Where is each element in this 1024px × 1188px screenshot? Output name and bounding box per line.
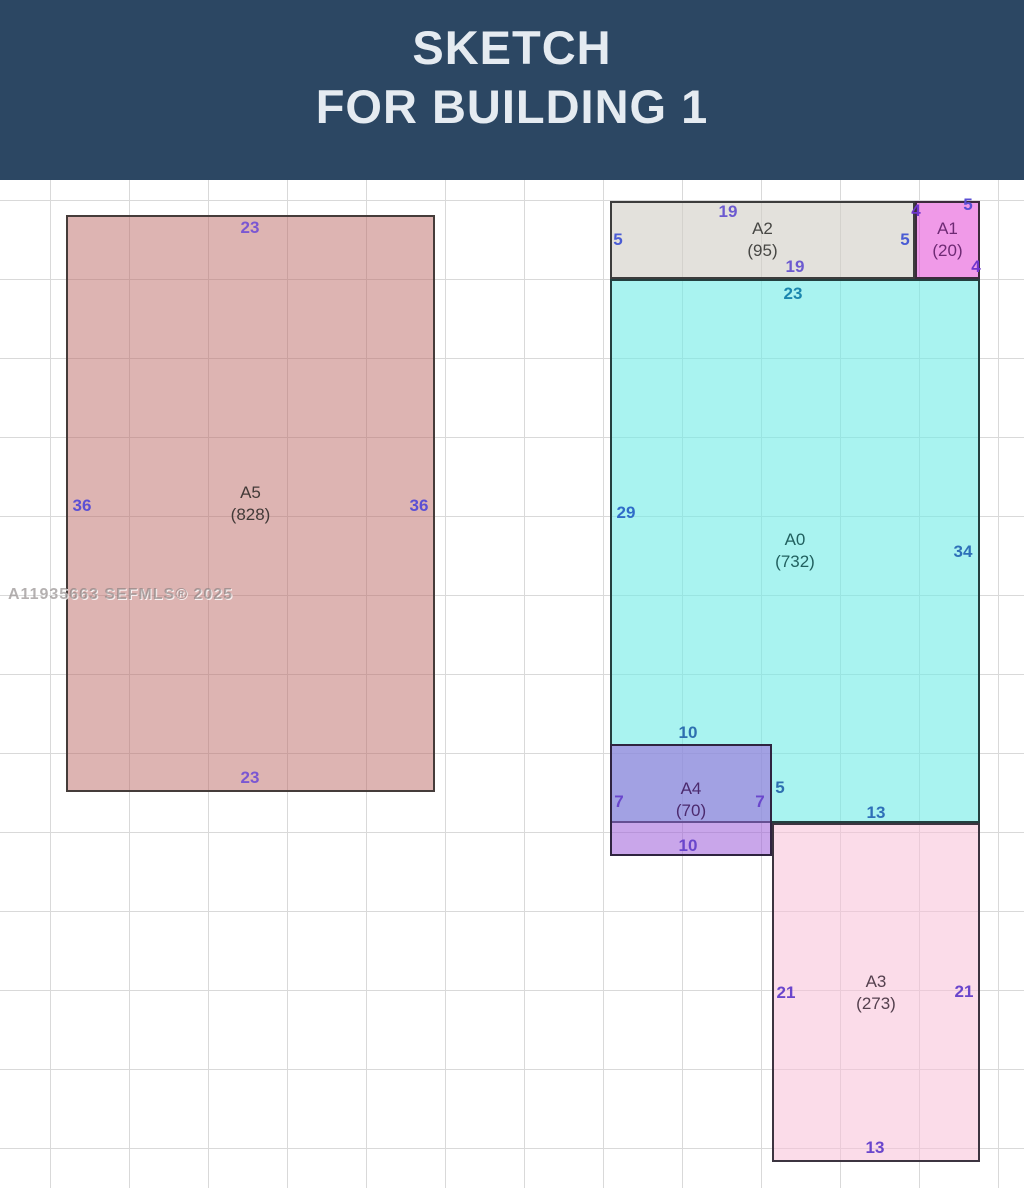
sketch-canvas: A5(828)A2(95)A1(20)A0(732)A4(70)A3(273) … — [0, 180, 1024, 1188]
area-label: A5(828) — [231, 482, 271, 526]
header-banner: SKETCH FOR BUILDING 1 — [0, 0, 1024, 180]
dimension-label-a2-top: 19 — [719, 202, 738, 222]
dimension-label-a5-bottom: 23 — [241, 768, 260, 788]
area-value-label: (20) — [932, 240, 962, 262]
area-label: A2(95) — [747, 218, 777, 262]
area-name-label: A1 — [932, 218, 962, 240]
sketch-page: SKETCH FOR BUILDING 1 A5(828)A2(95)A1(20… — [0, 0, 1024, 1188]
dimension-label-a2-left: 5 — [613, 230, 622, 250]
area-name-label: A5 — [231, 482, 271, 504]
dimension-label-a1-bottom-right: 4 — [971, 257, 980, 277]
dimension-label-a4-top-outside: 10 — [679, 723, 698, 743]
area-label: A1(20) — [932, 218, 962, 262]
dimension-label-a0-right: 34 — [954, 542, 973, 562]
dimension-label-a2-right: 5 — [900, 230, 909, 250]
dimension-label-a3-left: 21 — [777, 983, 796, 1003]
dimension-label-a4-right-outside: 5 — [775, 778, 784, 798]
mls-watermark: A11935663 SEFMLS® 2025 — [8, 586, 233, 604]
page-title-line1: SKETCH — [0, 18, 1024, 77]
area-value-label: (273) — [856, 993, 896, 1015]
area-a5: A5(828) — [66, 215, 435, 792]
area-value-label: (828) — [231, 504, 271, 526]
dimension-label-a5-left: 36 — [73, 496, 92, 516]
dimension-label-a4-left: 7 — [614, 792, 623, 812]
dimension-label-a4-bottom: 10 — [679, 836, 698, 856]
area-name-label: A3 — [856, 971, 896, 993]
dimension-label-a0-top: 23 — [784, 284, 803, 304]
area-label: A0(732) — [775, 529, 815, 573]
dimension-label-a0-bottom: 13 — [867, 803, 886, 823]
dimension-label-a3-bottom: 13 — [866, 1138, 885, 1158]
area-a3: A3(273) — [772, 823, 980, 1162]
area-value-label: (95) — [747, 240, 777, 262]
dimension-label-a1-top-right: 5 — [963, 195, 972, 215]
dimension-label-a5-right: 36 — [410, 496, 429, 516]
area-label: A4(70) — [676, 778, 706, 822]
dimension-label-a3-right: 21 — [955, 982, 974, 1002]
dimension-label-a0-left: 29 — [617, 503, 636, 523]
area-a2: A2(95) — [610, 201, 915, 279]
area-label: A3(273) — [856, 971, 896, 1015]
area-value-label: (70) — [676, 800, 706, 822]
page-title-line2: FOR BUILDING 1 — [0, 77, 1024, 136]
area-name-label: A0 — [775, 529, 815, 551]
area-name-label: A2 — [747, 218, 777, 240]
area-a0: A0(732) — [610, 279, 980, 823]
dimension-label-a2-bottom: 19 — [786, 257, 805, 277]
dimension-label-a1-top-left: 4 — [911, 201, 920, 221]
area-value-label: (732) — [775, 551, 815, 573]
area-name-label: A4 — [676, 778, 706, 800]
dimension-label-a4-right: 7 — [755, 792, 764, 812]
dimension-label-a5-top: 23 — [241, 218, 260, 238]
